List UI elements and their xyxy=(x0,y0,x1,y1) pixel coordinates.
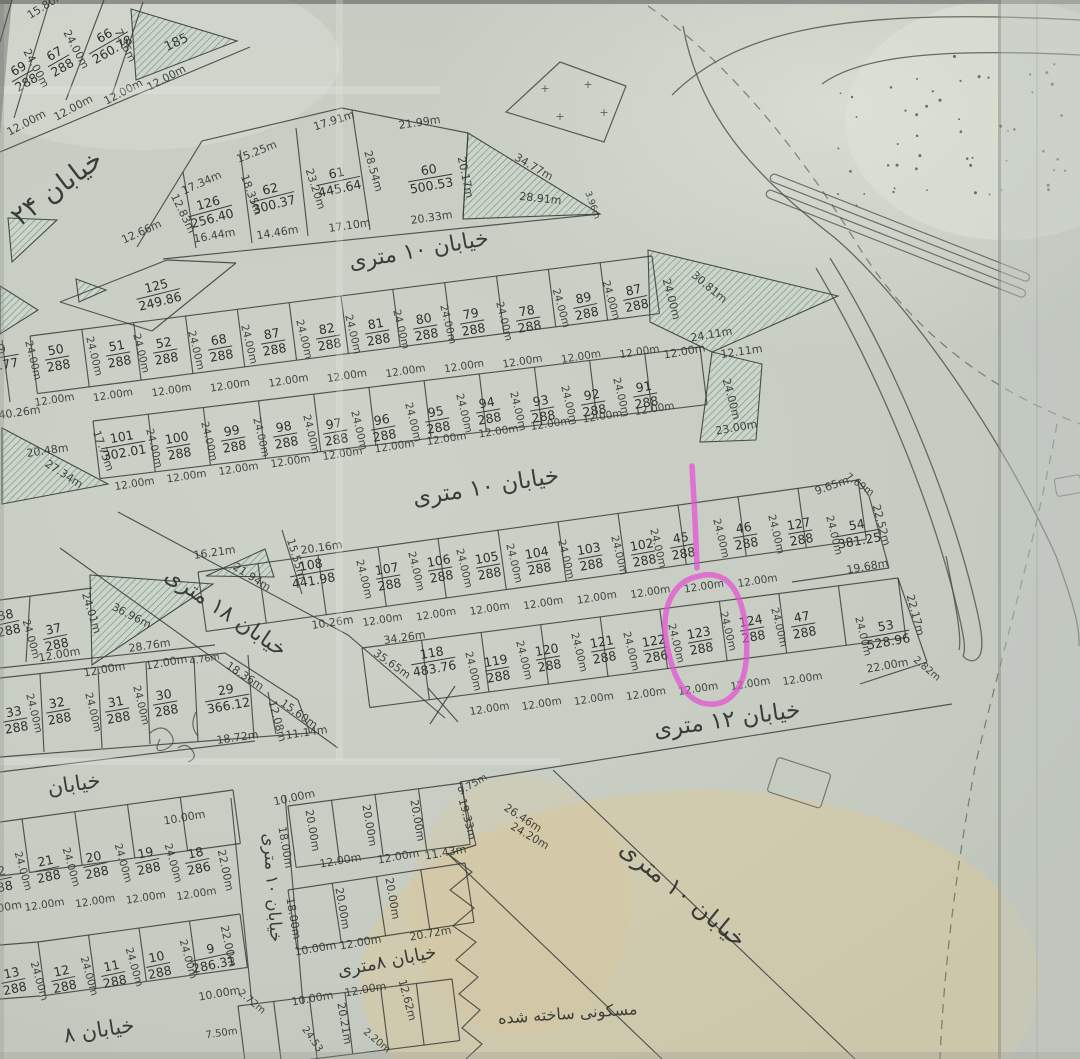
frontage-dimension-label: 12.00m xyxy=(469,700,511,718)
frontage-dimension-label: 12.00m xyxy=(176,885,218,903)
svg-text:53: 53 xyxy=(877,617,895,635)
highlighted-plot-label: 123288 xyxy=(685,623,714,658)
plot-boundary-line xyxy=(700,347,707,405)
stipple-dot xyxy=(849,170,852,173)
svg-text:288: 288 xyxy=(733,534,759,553)
svg-text:288: 288 xyxy=(221,437,247,456)
paper-crease xyxy=(336,0,343,760)
stipple-dot xyxy=(916,78,918,80)
dimension-label: 20.21m xyxy=(334,1001,354,1045)
dimension-label: 12.00m xyxy=(82,659,126,679)
dimension-label: 12.00m xyxy=(376,846,420,866)
dimension-label: 12.00m xyxy=(662,341,706,361)
plot-label: 80288 xyxy=(410,309,439,344)
stipple-dot xyxy=(863,193,865,195)
svg-text:13: 13 xyxy=(2,964,21,982)
dimension-label: 4.76m xyxy=(189,651,221,667)
dimension-label: 2.82m xyxy=(911,655,943,684)
plot-label: 125249.86 xyxy=(133,273,184,314)
side-dimension-label: 24.00m xyxy=(453,392,474,434)
svg-text:288: 288 xyxy=(485,667,511,686)
dimension-label: 17.91m xyxy=(312,108,356,133)
plot-boundary-line xyxy=(430,686,455,724)
side-dimension-label: 24.00m xyxy=(717,610,738,652)
plus-mark: + xyxy=(583,78,592,91)
paper-crease xyxy=(998,0,1001,1059)
dimension-label: 20.00m xyxy=(302,808,322,852)
svg-text:30: 30 xyxy=(155,686,173,704)
svg-text:288: 288 xyxy=(670,544,696,563)
frontage-dimension-label: 12.00m xyxy=(92,386,134,404)
handwritten-scribble xyxy=(150,728,173,751)
frontage-dimension-label: 12.00m xyxy=(573,690,615,708)
side-dimension-label: 24.00m xyxy=(60,846,83,888)
svg-text:33: 33 xyxy=(5,703,23,721)
svg-text:93: 93 xyxy=(532,392,550,410)
svg-text:288: 288 xyxy=(106,352,132,371)
stipple-dot xyxy=(918,154,921,157)
paper-crease xyxy=(1036,0,1038,1059)
plot-label: 33288 xyxy=(0,702,29,737)
svg-text:91: 91 xyxy=(635,378,653,396)
svg-text:80: 80 xyxy=(415,310,433,328)
side-dimension-label: 24.00m xyxy=(12,850,35,892)
frontage-dimension-label: 12.00m xyxy=(469,600,511,618)
paper-crease xyxy=(0,86,440,94)
side-dimension-label: 24.00m xyxy=(503,542,524,584)
stipple-dot xyxy=(953,55,956,58)
stipple-dot xyxy=(932,90,934,92)
svg-text:47: 47 xyxy=(793,608,811,626)
svg-text:288: 288 xyxy=(413,325,439,344)
dimension-label: 28.54m xyxy=(361,149,385,193)
plot-label: 79288 xyxy=(457,304,486,339)
svg-text:288: 288 xyxy=(788,530,814,549)
dimension-label: 10.00m xyxy=(293,938,337,958)
stipple-dot xyxy=(926,189,928,191)
stipple-dot xyxy=(958,118,960,120)
svg-text:96: 96 xyxy=(373,411,391,429)
plot-label: 50288 xyxy=(42,340,71,375)
side-dimension-label: 24.00m xyxy=(390,308,411,350)
side-dimension-label: 24.00m xyxy=(293,318,314,360)
side-dimension-label: 24.00m xyxy=(555,538,576,580)
stipple-dot xyxy=(978,75,981,78)
svg-text:99: 99 xyxy=(223,422,241,440)
street-label: خیابان ۱۸ متری xyxy=(160,563,291,663)
road-curve xyxy=(816,268,964,656)
plus-mark: + xyxy=(540,82,549,95)
road-curve xyxy=(946,556,960,650)
stipple-dot xyxy=(856,116,858,118)
stipple-dot xyxy=(894,187,896,189)
plus-mark: + xyxy=(599,106,608,119)
svg-text:288: 288 xyxy=(578,555,604,574)
stipple-dot xyxy=(837,193,839,195)
plot-label: 98288 xyxy=(270,417,299,452)
svg-text:81: 81 xyxy=(367,315,385,333)
plot-label: 99288 xyxy=(218,421,247,456)
plot-label: 47288 xyxy=(788,607,817,642)
side-dimension-label: 24.00m xyxy=(620,630,641,672)
plot-label: 13288 xyxy=(0,963,28,998)
stipple-dot xyxy=(959,80,961,82)
plot-boundary-line xyxy=(274,1002,282,1059)
plot-boundary-line xyxy=(362,648,370,707)
frontage-dimension-label: 12.00m xyxy=(737,572,779,590)
dimension-label: 20.33m xyxy=(410,208,454,227)
dimension-label: 34.26m xyxy=(383,628,427,647)
side-dimension-label: 24.00m xyxy=(112,842,135,884)
svg-text:60: 60 xyxy=(420,161,438,179)
dimension-label: 12.00m xyxy=(144,652,188,672)
plus-mark: + xyxy=(555,110,564,123)
frontage-dimension-label: 12.00m xyxy=(630,583,672,601)
side-dimension-label: 24.00m xyxy=(462,650,483,692)
svg-text:31: 31 xyxy=(107,693,125,711)
frontage-dimension-label: 12.00m xyxy=(521,695,563,713)
frontage-dimension-label: 12.00m xyxy=(268,372,310,390)
side-dimension-label: 24.00m xyxy=(568,631,589,673)
frontage-dimension-label: 12.00m xyxy=(619,343,661,361)
plot-boundary-line xyxy=(838,586,846,645)
paper-crease xyxy=(0,0,4,1059)
side-dimension-label: 24.00m xyxy=(710,517,731,559)
side-dimension-label: 24.00m xyxy=(22,339,43,381)
dimension-label: 19.68m xyxy=(845,556,889,576)
svg-text:37: 37 xyxy=(44,620,63,638)
street-label: خیابان ۱۰ متری xyxy=(411,463,561,512)
stipple-dot xyxy=(960,130,963,133)
svg-text:288: 288 xyxy=(476,564,502,583)
plot-label: 87288 xyxy=(620,280,650,315)
svg-text:288: 288 xyxy=(591,648,617,667)
side-dimension-label: 24.00m xyxy=(162,842,185,884)
hatched-area xyxy=(76,279,106,302)
svg-text:87: 87 xyxy=(624,281,643,299)
svg-text:54: 54 xyxy=(848,516,866,534)
plot-label: 118483.76 xyxy=(408,641,458,679)
plot-label: 46288 xyxy=(730,518,759,553)
plot-label: 51288 xyxy=(103,336,132,371)
stipple-dot xyxy=(856,204,858,206)
stipple-dot xyxy=(987,76,989,78)
cadastral-map: ++++692886728866260.78126256.4062300.376… xyxy=(0,0,1080,1059)
svg-text:11: 11 xyxy=(102,957,121,975)
dimension-label: 11.14m xyxy=(285,723,329,742)
frontage-dimension-label: 12.00m xyxy=(522,594,564,612)
svg-text:288: 288 xyxy=(791,623,817,642)
frontage-dimension-label: 12.00m xyxy=(415,605,457,623)
side-dimension-label: 24.00m xyxy=(600,279,623,321)
plot-label: 60500.53 xyxy=(405,158,455,196)
side-dimension-label: 24.00m xyxy=(198,420,219,462)
side-dimension-label: 24.00m xyxy=(513,639,534,681)
map-photo: ++++692886728866260.78126256.4062300.376… xyxy=(0,0,1080,1059)
dimension-label: 20.00m xyxy=(332,886,352,930)
svg-text:288: 288 xyxy=(273,433,299,452)
plot-boundary-line xyxy=(289,303,296,361)
street-label: خیابان ۱۲ متری xyxy=(652,697,802,743)
frontage-dimension-label: 12.00m xyxy=(326,367,368,385)
svg-text:288: 288 xyxy=(526,559,552,578)
frontage-dimension-label: 12.00m xyxy=(209,377,251,395)
stipple-dot xyxy=(892,191,894,193)
plot-label: 45288 xyxy=(667,528,696,563)
svg-text:288: 288 xyxy=(261,340,287,359)
svg-text:9: 9 xyxy=(205,940,216,956)
side-dimension-label: 24.00m xyxy=(437,303,458,345)
svg-text:483.76: 483.76 xyxy=(412,657,458,679)
frontage-dimension-label: 12.00m xyxy=(74,892,116,910)
dimension-label: 17.10m xyxy=(328,216,372,235)
frontage-dimension-label: 12.00m xyxy=(24,896,66,914)
plot-label: 21288 xyxy=(32,851,62,886)
frontage-dimension-label: 12.00m xyxy=(782,670,824,688)
plot-label: 31288 xyxy=(102,692,131,727)
dimension-label: 22.00m xyxy=(865,655,909,675)
plot-boundary-line xyxy=(0,588,92,600)
svg-text:288: 288 xyxy=(536,656,562,675)
svg-text:52: 52 xyxy=(155,334,173,352)
svg-text:94: 94 xyxy=(478,394,496,412)
hatched-area xyxy=(463,133,600,219)
side-dimension-label: 24.00m xyxy=(185,329,206,371)
side-dimension-label: 24.00m xyxy=(608,534,629,576)
stipple-dot xyxy=(890,86,893,89)
plot-boundary-line xyxy=(194,658,198,741)
frontage-dimension-label: 12.00m xyxy=(270,452,312,470)
svg-text:79: 79 xyxy=(462,305,480,323)
svg-text:21: 21 xyxy=(36,852,55,870)
frontage-dimension-label: 12.00m xyxy=(218,460,260,478)
frontage-dimension-label: 12.00m xyxy=(576,589,618,607)
plot-boundary-line xyxy=(231,798,252,1004)
plot-label: 97288 xyxy=(320,414,349,449)
svg-text:288: 288 xyxy=(376,575,402,594)
svg-text:288: 288 xyxy=(105,708,131,727)
svg-text:51: 51 xyxy=(108,337,126,355)
svg-text:29: 29 xyxy=(217,681,235,699)
side-dimension-label: 24.00m xyxy=(768,606,789,648)
plot-boundary-line xyxy=(75,812,82,865)
frontage-dimension-label: 12.00m xyxy=(151,381,193,399)
plot-label: 32288 xyxy=(43,693,72,728)
side-dimension-label: 24.00m xyxy=(83,335,104,377)
paper-crease xyxy=(0,0,1080,4)
side-dimension-label: 24.00m xyxy=(130,332,151,374)
dimension-label: 10.00m xyxy=(290,988,334,1008)
plot-boundary-line xyxy=(898,578,906,637)
dimension-label: 24.53 xyxy=(299,1025,324,1055)
svg-text:32: 32 xyxy=(48,694,66,712)
svg-text:288: 288 xyxy=(688,639,714,658)
stipple-dot xyxy=(897,143,899,145)
plot-label: 87288 xyxy=(258,324,287,359)
plot-boundary-line xyxy=(238,1006,246,1059)
svg-text:500.53: 500.53 xyxy=(409,174,455,196)
stipple-dot xyxy=(974,191,977,194)
frontage-dimension-label: 12.00m xyxy=(443,357,485,375)
svg-text:288: 288 xyxy=(153,349,179,368)
dimension-label: 14.46m xyxy=(256,223,300,242)
street-label: خیابان ۱۰ متری xyxy=(347,226,491,275)
plot-label: 107288 xyxy=(373,559,402,594)
plot-label: 68288 xyxy=(205,330,234,365)
svg-text:68: 68 xyxy=(210,331,228,349)
plot-boundary-line xyxy=(332,800,340,861)
svg-text:12: 12 xyxy=(52,962,71,980)
side-dimension-label: 24.00m xyxy=(765,513,786,555)
plot-boundary-line xyxy=(0,942,38,945)
dimension-label: 10.00m xyxy=(197,983,241,1003)
stipple-dot xyxy=(925,105,928,108)
side-dimension-label: 24.00m xyxy=(405,550,426,592)
svg-text:288: 288 xyxy=(516,317,542,336)
svg-text:288: 288 xyxy=(208,346,234,365)
dimension-label: 28.76m xyxy=(128,636,172,655)
dimension-label: 16.21m xyxy=(193,543,237,562)
svg-text:288: 288 xyxy=(166,444,192,463)
frontage-dimension-label: 12.00m xyxy=(114,475,156,493)
stipple-dot xyxy=(887,164,889,166)
dimension-label: 2.72m xyxy=(236,988,268,1017)
plot-label: 121288 xyxy=(588,632,617,667)
stipple-dot xyxy=(915,113,918,116)
dimension-label: 12.66m xyxy=(120,217,164,246)
frontage-dimension-label: 12.00m xyxy=(385,362,427,380)
paper-crease xyxy=(0,1052,1080,1059)
plot-boundary-line xyxy=(296,128,308,236)
stipple-dot xyxy=(989,194,991,196)
plot-boundary-line xyxy=(498,530,506,589)
plot-label: 120288 xyxy=(533,640,562,675)
plot-label: 81288 xyxy=(362,314,391,349)
svg-text:366.12: 366.12 xyxy=(206,694,252,716)
plot-label: 30288 xyxy=(150,685,179,720)
svg-text:78: 78 xyxy=(518,302,536,320)
dimension-label: 21.99m xyxy=(398,113,442,132)
svg-text:288: 288 xyxy=(428,567,454,586)
plot-label: 29366.12 xyxy=(202,678,252,716)
street-label: خیابان ۲۴ xyxy=(5,144,108,233)
plot-label: 10288 xyxy=(143,947,173,982)
stipple-dot xyxy=(851,96,853,98)
plot-label: 100288 xyxy=(163,428,192,463)
dimension-label: 18.00m xyxy=(283,896,303,940)
side-dimension-label: 24.00m xyxy=(143,427,164,469)
plot-label: 89288 xyxy=(570,288,600,323)
plot-boundary-line xyxy=(233,790,240,843)
plot-label: 105288 xyxy=(473,548,502,583)
svg-text:87: 87 xyxy=(263,325,281,343)
frontage-dimension-label: 12.00m xyxy=(502,353,544,371)
street-label: خیابان ۸ xyxy=(62,1013,136,1048)
side-dimension-label: 24.00m xyxy=(453,547,474,589)
side-dimension-label: 24.00m xyxy=(177,938,200,980)
frontage-dimension-label: 12.00m xyxy=(625,685,667,703)
plot-label: 103288 xyxy=(575,539,604,574)
plot-label: 19288 xyxy=(132,843,162,878)
svg-text:46: 46 xyxy=(735,519,753,537)
plot-label: 52288 xyxy=(150,333,179,368)
stipple-dot xyxy=(916,134,919,137)
stipple-dot xyxy=(966,157,969,160)
plot-label: 106288 xyxy=(425,551,454,586)
landmark-triangle xyxy=(506,62,626,142)
dimension-label: 7.50m xyxy=(205,1026,238,1041)
side-dimension-label: 24.00m xyxy=(353,558,374,600)
frontage-dimension-label: 12.00m xyxy=(560,348,602,366)
side-dimension-label: 24.00m xyxy=(28,960,51,1002)
plot-boundary-line xyxy=(128,805,135,858)
stipple-dot xyxy=(972,157,974,159)
stipple-dot xyxy=(896,164,899,167)
stipple-dot xyxy=(969,164,972,167)
frontage-dimension-label: 12.00m xyxy=(362,611,404,629)
svg-text:288: 288 xyxy=(46,709,72,728)
road-curve xyxy=(963,655,980,661)
svg-text:288: 288 xyxy=(365,330,391,349)
plot-label: 94288 xyxy=(473,393,502,428)
plot-boundary-line xyxy=(167,260,236,263)
stipple-dot xyxy=(938,99,941,102)
paper-crease xyxy=(1001,0,1080,1059)
svg-text:288: 288 xyxy=(45,356,71,375)
plot-label: 12288 xyxy=(48,961,78,996)
svg-text:45: 45 xyxy=(672,529,690,547)
dimension-label: 35.65m xyxy=(371,647,413,682)
dimension-label: 15.25m xyxy=(235,138,279,166)
stipple-dot xyxy=(904,110,906,112)
dimension-label: 20.00m xyxy=(407,798,427,842)
dimension-label: 22.00m xyxy=(215,848,236,892)
dimension-label: 18.35m xyxy=(238,173,265,217)
plot-label: 127288 xyxy=(785,514,814,549)
dimension-label: 12.00m xyxy=(318,850,362,870)
svg-text:82: 82 xyxy=(318,320,336,338)
svg-text:95: 95 xyxy=(427,403,445,421)
stipple-dot xyxy=(840,92,842,94)
plot-label: 78288 xyxy=(513,301,542,336)
stipple-dot xyxy=(837,148,839,150)
plot-label: 11288 xyxy=(98,956,128,991)
hatched-area xyxy=(0,286,38,334)
side-dimension-label: 24.00m xyxy=(250,416,271,458)
svg-text:50: 50 xyxy=(47,341,65,359)
plot-label: 104288 xyxy=(523,543,552,578)
plot-label: 119288 xyxy=(482,651,511,686)
svg-text:288: 288 xyxy=(3,718,29,737)
paper-crease xyxy=(0,758,560,765)
side-dimension-label: 24.00m xyxy=(493,300,514,342)
svg-text:98: 98 xyxy=(275,418,293,436)
dimension-label: 18.72m xyxy=(216,728,260,747)
svg-text:92: 92 xyxy=(583,386,601,404)
svg-text:288: 288 xyxy=(153,701,179,720)
stipple-dot xyxy=(915,167,918,170)
street-label: خیابان xyxy=(46,768,102,800)
frontage-dimension-label: 12.00m xyxy=(125,889,167,907)
plot-label: 95288 xyxy=(422,402,451,437)
